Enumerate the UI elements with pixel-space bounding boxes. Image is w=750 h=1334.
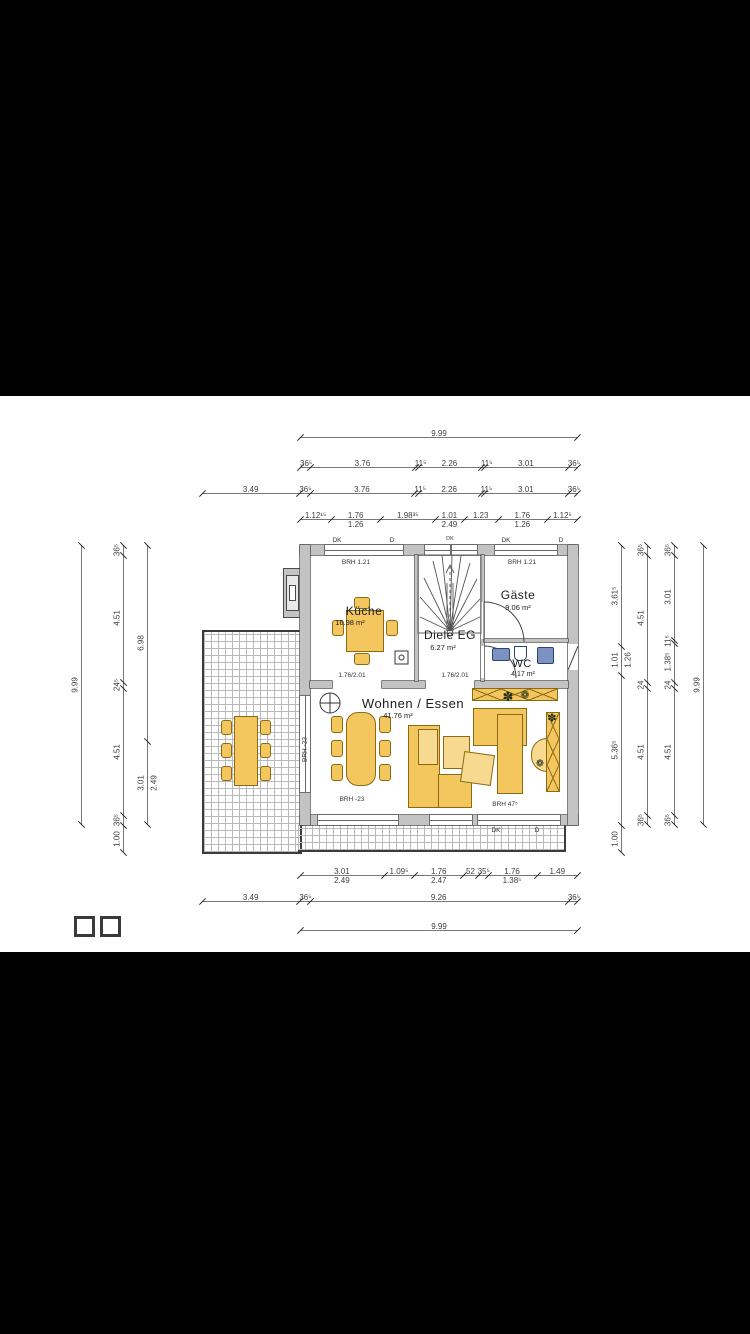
dim-segment: 3.01 [484,480,568,502]
coffee-table-2 [460,751,495,786]
dim-segment: 1.38⁵ [661,643,683,682]
dim-segment: 2.26 [418,454,481,476]
dim-segment: 2.26 [418,480,481,502]
sofa-left-seat [418,729,438,765]
terrace-chair [221,766,232,781]
dim-chain-bottom-total: 9.99 [300,917,578,939]
dim-chain-top-3: 3.4936⁵3.7611⁵2.2611⁵3.0136⁵ [202,480,578,502]
dim-segment: 1.98³⁵ [380,506,435,528]
kitchen-chair [386,620,398,636]
dim-segment: 9.99 [300,917,578,939]
plant-icon: ❁ [520,689,529,702]
page-control-square-1[interactable] [74,916,95,937]
dim-segment: 36⁵ [661,815,683,825]
dim-segment: 1.011.26 [608,646,630,674]
dim-segment: 3.01 [484,454,568,476]
dim-segment: 3.01 [661,555,683,639]
room-label-gaeste: Gäste [501,588,536,602]
washbasin-icon [492,648,510,661]
dim-segment: 1.761.38⁵ [488,862,537,884]
dim-segment: 9.26 [310,888,568,910]
room-area-diele: 6.27 m² [430,643,455,652]
dim-segment: 4.51 [110,688,132,814]
dim-segment: 35⁵ [478,862,488,884]
plant-icon: ✽ [503,689,514,705]
page-control-square-2[interactable] [100,916,121,937]
dim-segment: 4.51 [634,688,656,814]
terrace-chair [221,720,232,735]
dim-segment: 1.12¹⁵ [300,506,331,528]
dining-table [346,712,376,786]
dim-segment: 3.76 [310,454,415,476]
phone-screen: { "rooms": { "kueche": {"name": "Küche",… [0,0,750,1334]
dining-chair [331,764,343,781]
wall-unit-cell [547,739,559,765]
dim-segment: 1.012.49 [435,506,463,528]
dim-segment: 9.99 [300,424,578,446]
dim-chain-bottom-2: 3.4936⁵9.2636⁵ [202,888,578,910]
vent-label-dk: DK [501,537,510,544]
terrace-table [234,716,258,786]
dim-segment: 36⁵ [299,480,309,502]
floorplan-sheet: 9.99 36⁵3.7611⁵2.2611⁵3.0136⁵ 3.4936⁵3.7… [0,396,750,952]
terrace-chair [260,720,271,735]
dim-segment: 5.36⁵ [608,675,630,825]
dim-segment: 3.49 [202,480,299,502]
dim-segment: 3.49 [202,888,299,910]
dim-chain-right-total: 9.99 [690,545,712,825]
kitchen-chair [354,653,370,665]
sill-label-left: BRH -23 [302,737,309,762]
dim-segment: 1.761.26 [331,506,380,528]
dining-chair [379,764,391,781]
room-label-wohnen: Wohnen / Essen [362,696,464,711]
vent-label-d: D [535,827,540,834]
dining-chair [331,740,343,757]
dim-chain-right-1: 3.61⁵1.011.265.36⁵1.00 [608,545,630,853]
chimney-core [289,585,296,601]
sideboard-cell [473,689,501,700]
terrace-chair [260,766,271,781]
dim-segment: 3.76 [310,480,415,502]
dim-segment: 3.61⁵ [608,545,630,646]
dim-segment: 6.98 [134,545,156,741]
sill-label-gaeste: BRH 1.21 [508,559,536,566]
dim-segment: 36⁵ [299,888,309,910]
sill-label-kueche: BRH 1.21 [342,559,370,566]
room-area-wohnen: 41.76 m² [383,711,413,720]
plant-icon: ❁ [536,759,544,770]
dim-chain-bottom-1: 3.012.491.09⁵1.762.475235⁵1.761.38⁵1.49 [300,862,578,884]
dim-segment: 1.23 [464,506,498,528]
dim-segment: 3.012.49 [134,741,156,825]
room-area-kueche: 16.98 m² [335,618,365,627]
door-size-diele: 1.76/2.01 [441,672,468,679]
dining-chair [331,716,343,733]
dim-segment: 1.09⁵ [384,862,414,884]
dim-segment: 36⁵ [300,454,310,476]
terrace-chair [221,743,232,758]
door-size-kueche: 1.76/2.01 [338,672,365,679]
dim-segment: 4.51 [110,555,132,681]
room-label-kueche: Küche [346,604,383,618]
dim-segment: 1.762.47 [414,862,463,884]
vent-label-dk: DK [446,536,454,542]
terrace-chair [260,743,271,758]
shower-icon [537,647,554,664]
dim-segment: 36⁵ [634,815,656,825]
dim-chain-right-3: 36⁵3.0111⁵1.38⁵244.5136⁵ [661,545,683,825]
dim-segment: 1.761.26 [498,506,547,528]
sofa-corner-side [497,714,523,794]
vent-label-dk: DK [491,827,500,834]
dim-chain-left-total: 9.99 [68,545,90,825]
dim-segment: 3.012.49 [300,862,384,884]
vent-label-d: D [390,537,395,544]
dim-chain-left-2: 36⁵4.5124⁵4.5136⁵1.00 [110,545,132,853]
plant-icon: ✽ [547,712,556,725]
dim-chain-right-2: 36⁵4.51244.5136⁵ [634,545,656,825]
vent-label-d: D [559,537,564,544]
sideboard-top [472,688,558,701]
dim-segment: 36⁵ [568,454,578,476]
sideboard-cell [529,689,557,700]
dim-segment: 36⁵ [568,888,578,910]
dim-segment: 4.51 [661,688,683,814]
dim-segment: 1.00 [608,825,630,853]
dim-segment: 52 [463,862,477,884]
sill-label-bottom-right: BRH 47⁵ [492,801,517,808]
dim-segment: 1.12⁵ [547,506,578,528]
dining-chair [379,740,391,757]
dim-chain-top-total: 9.99 [300,424,578,446]
room-label-diele: Diele EG [424,628,476,642]
dim-segment: 9.99 [690,545,712,825]
room-area-gaeste: 9.06 m² [505,603,530,612]
dim-segment: 4.51 [634,555,656,681]
room-label-wc: WC [512,658,531,670]
dim-segment: 1.00 [110,825,132,853]
room-area-wc: 4.17 m² [511,671,535,678]
sill-label-bottom: BRH -23 [340,796,365,803]
dim-segment: 36⁵ [568,480,578,502]
dim-chain-top-2: 36⁵3.7611⁵2.2611⁵3.0136⁵ [300,454,578,476]
dim-segment: 1.49 [537,862,578,884]
wall-unit-cell [547,765,559,791]
terrace-strip [298,825,566,852]
dim-segment: 9.99 [68,545,90,825]
dim-chain-left-3: 6.983.012.49 [134,545,156,825]
dim-chain-top-4: 1.12¹⁵1.761.261.98³⁵1.012.491.231.761.26… [300,506,578,528]
vent-label-dk: DK [332,537,341,544]
